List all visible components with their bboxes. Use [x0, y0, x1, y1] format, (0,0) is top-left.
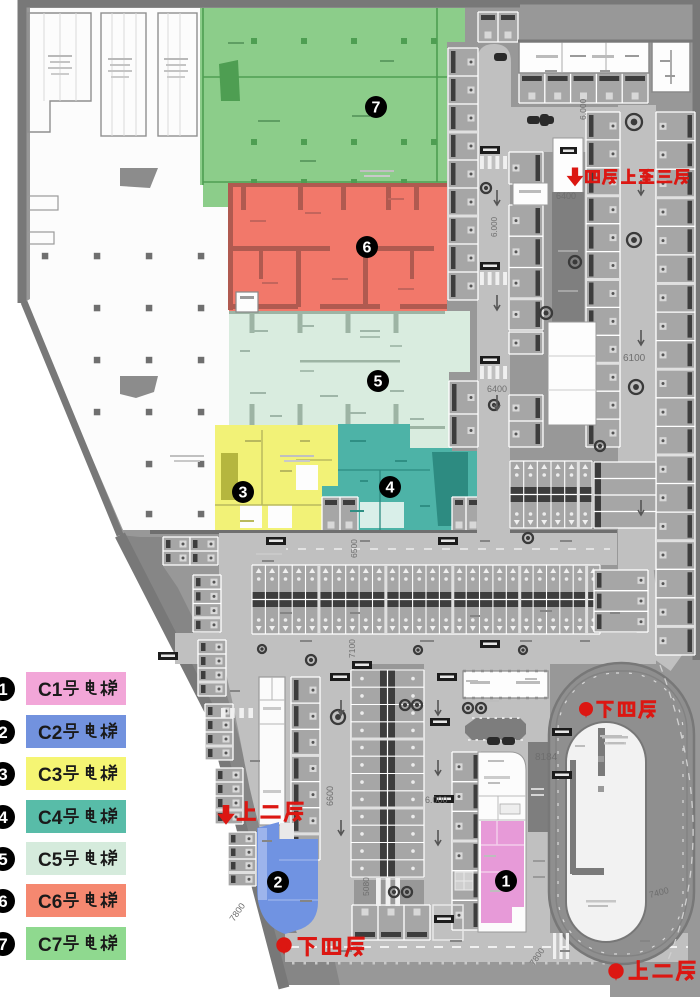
svg-text:5: 5: [0, 850, 8, 869]
svg-text:1: 1: [0, 680, 8, 699]
svg-text:1: 1: [502, 874, 511, 891]
svg-text:6.000: 6.000: [578, 98, 588, 120]
svg-text:7: 7: [0, 935, 8, 954]
svg-text:6: 6: [363, 240, 372, 257]
svg-text:6400: 6400: [556, 191, 576, 201]
svg-text:6600: 6600: [325, 786, 335, 806]
svg-text:6100: 6100: [623, 353, 646, 364]
svg-text:3: 3: [0, 765, 8, 784]
svg-text:2: 2: [0, 723, 8, 742]
svg-text:C2: C2: [38, 723, 62, 744]
svg-text:3: 3: [239, 485, 248, 502]
svg-text:C3: C3: [38, 765, 62, 786]
svg-text:C7: C7: [38, 935, 62, 956]
svg-text:8184: 8184: [535, 752, 558, 763]
svg-text:C4: C4: [38, 808, 63, 829]
svg-text:6.000: 6.000: [425, 795, 448, 805]
svg-text:4: 4: [0, 808, 8, 827]
svg-text:2: 2: [274, 875, 283, 892]
svg-text:7: 7: [372, 100, 381, 117]
svg-text:7100: 7100: [347, 639, 357, 658]
svg-text:5080: 5080: [361, 877, 371, 896]
svg-text:6500: 6500: [349, 539, 359, 558]
svg-text:5: 5: [374, 374, 383, 391]
svg-text:4: 4: [386, 480, 395, 497]
svg-text:6: 6: [0, 892, 8, 911]
svg-text:C1: C1: [38, 680, 63, 701]
svg-text:6.000: 6.000: [490, 216, 499, 237]
svg-text:6400: 6400: [487, 384, 507, 394]
svg-text:C6: C6: [38, 892, 62, 913]
svg-text:C5: C5: [38, 850, 63, 871]
